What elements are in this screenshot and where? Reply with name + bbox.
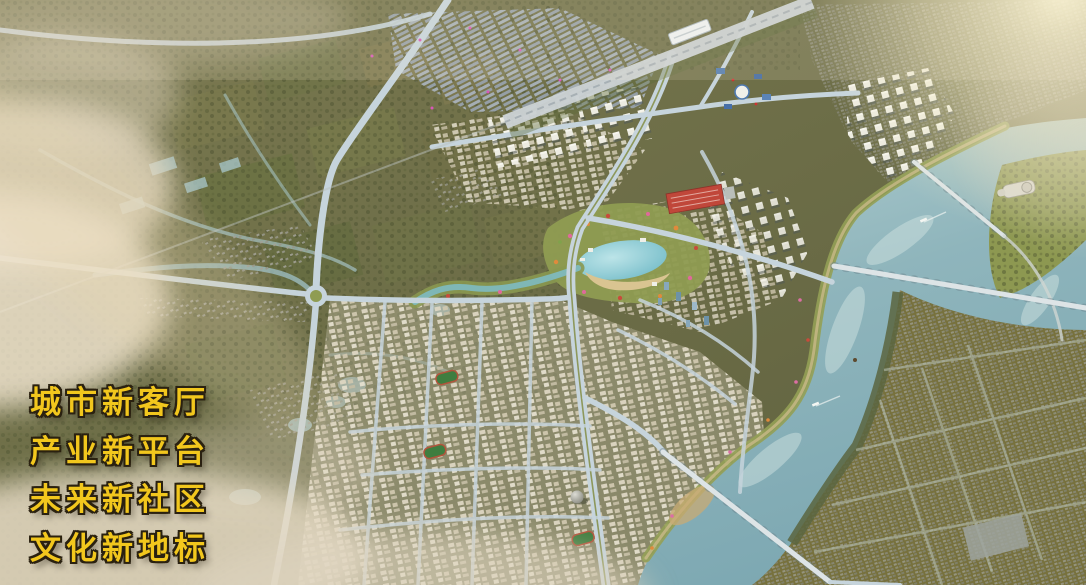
slogan-line-1: 城市新客厅 <box>30 379 210 428</box>
top-haze <box>0 0 1086 80</box>
slogan-line-4: 文化新地标 <box>30 525 210 574</box>
slogan: 城市新客厅 产业新平台 未来新社区 文化新地标 <box>30 379 210 573</box>
roundabout <box>308 288 325 305</box>
slogan-line-2: 产业新平台 <box>30 428 210 477</box>
slogan-line-3: 未来新社区 <box>30 476 210 525</box>
rendering-canvas: 城市新客厅 产业新平台 未来新社区 文化新地标 <box>0 0 1086 585</box>
